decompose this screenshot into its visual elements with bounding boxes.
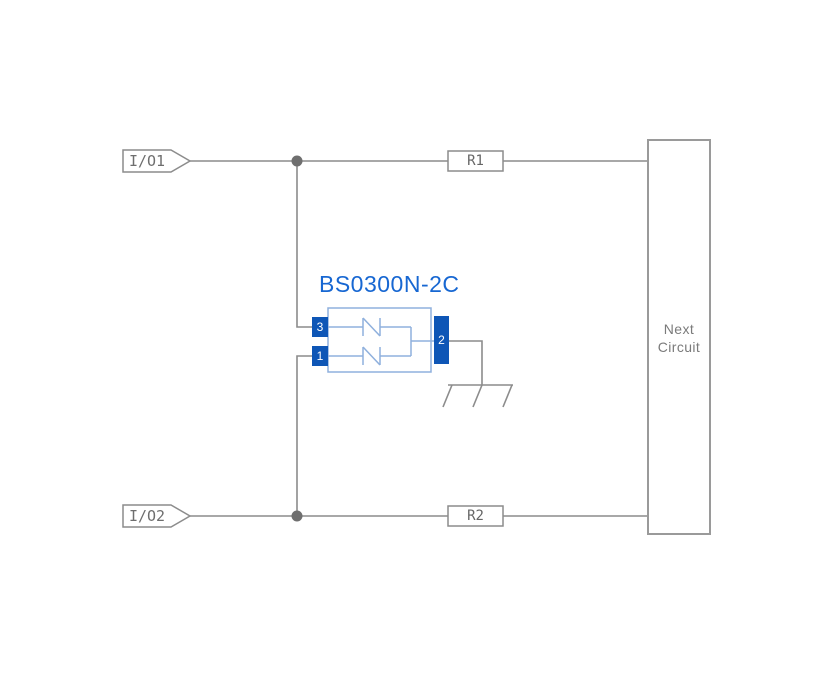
pin-number-3: 3 [312,317,328,337]
next-circuit-line1: Next [664,321,694,337]
wire-junction-to-pin3 [297,161,312,327]
resistor-label-r2: R2 [448,506,503,526]
junction-dot-bottom [292,511,303,522]
wire-pin2-to-ground [449,341,482,385]
next-circuit-line2: Circuit [658,339,700,355]
ground-symbol [443,385,513,407]
port-label-io2: I/O2 [123,505,171,527]
junction-dot-top [292,156,303,167]
port-label-io1: I/O1 [123,150,171,172]
pin-number-2: 2 [434,316,449,364]
wire-junction-to-pin1 [297,356,312,516]
ground-hatch-2 [473,385,482,407]
component-title: BS0300N-2C [319,271,460,298]
ground-hatch-1 [443,385,452,407]
ground-hatch-3 [503,385,512,407]
next-circuit-label: Next Circuit [648,320,710,356]
schematic-canvas: I/O1 I/O2 R1 R2 BS0300N-2C 3 1 2 Next Ci… [0,0,832,675]
resistor-label-r1: R1 [448,151,503,171]
pin-number-1: 1 [312,346,328,366]
